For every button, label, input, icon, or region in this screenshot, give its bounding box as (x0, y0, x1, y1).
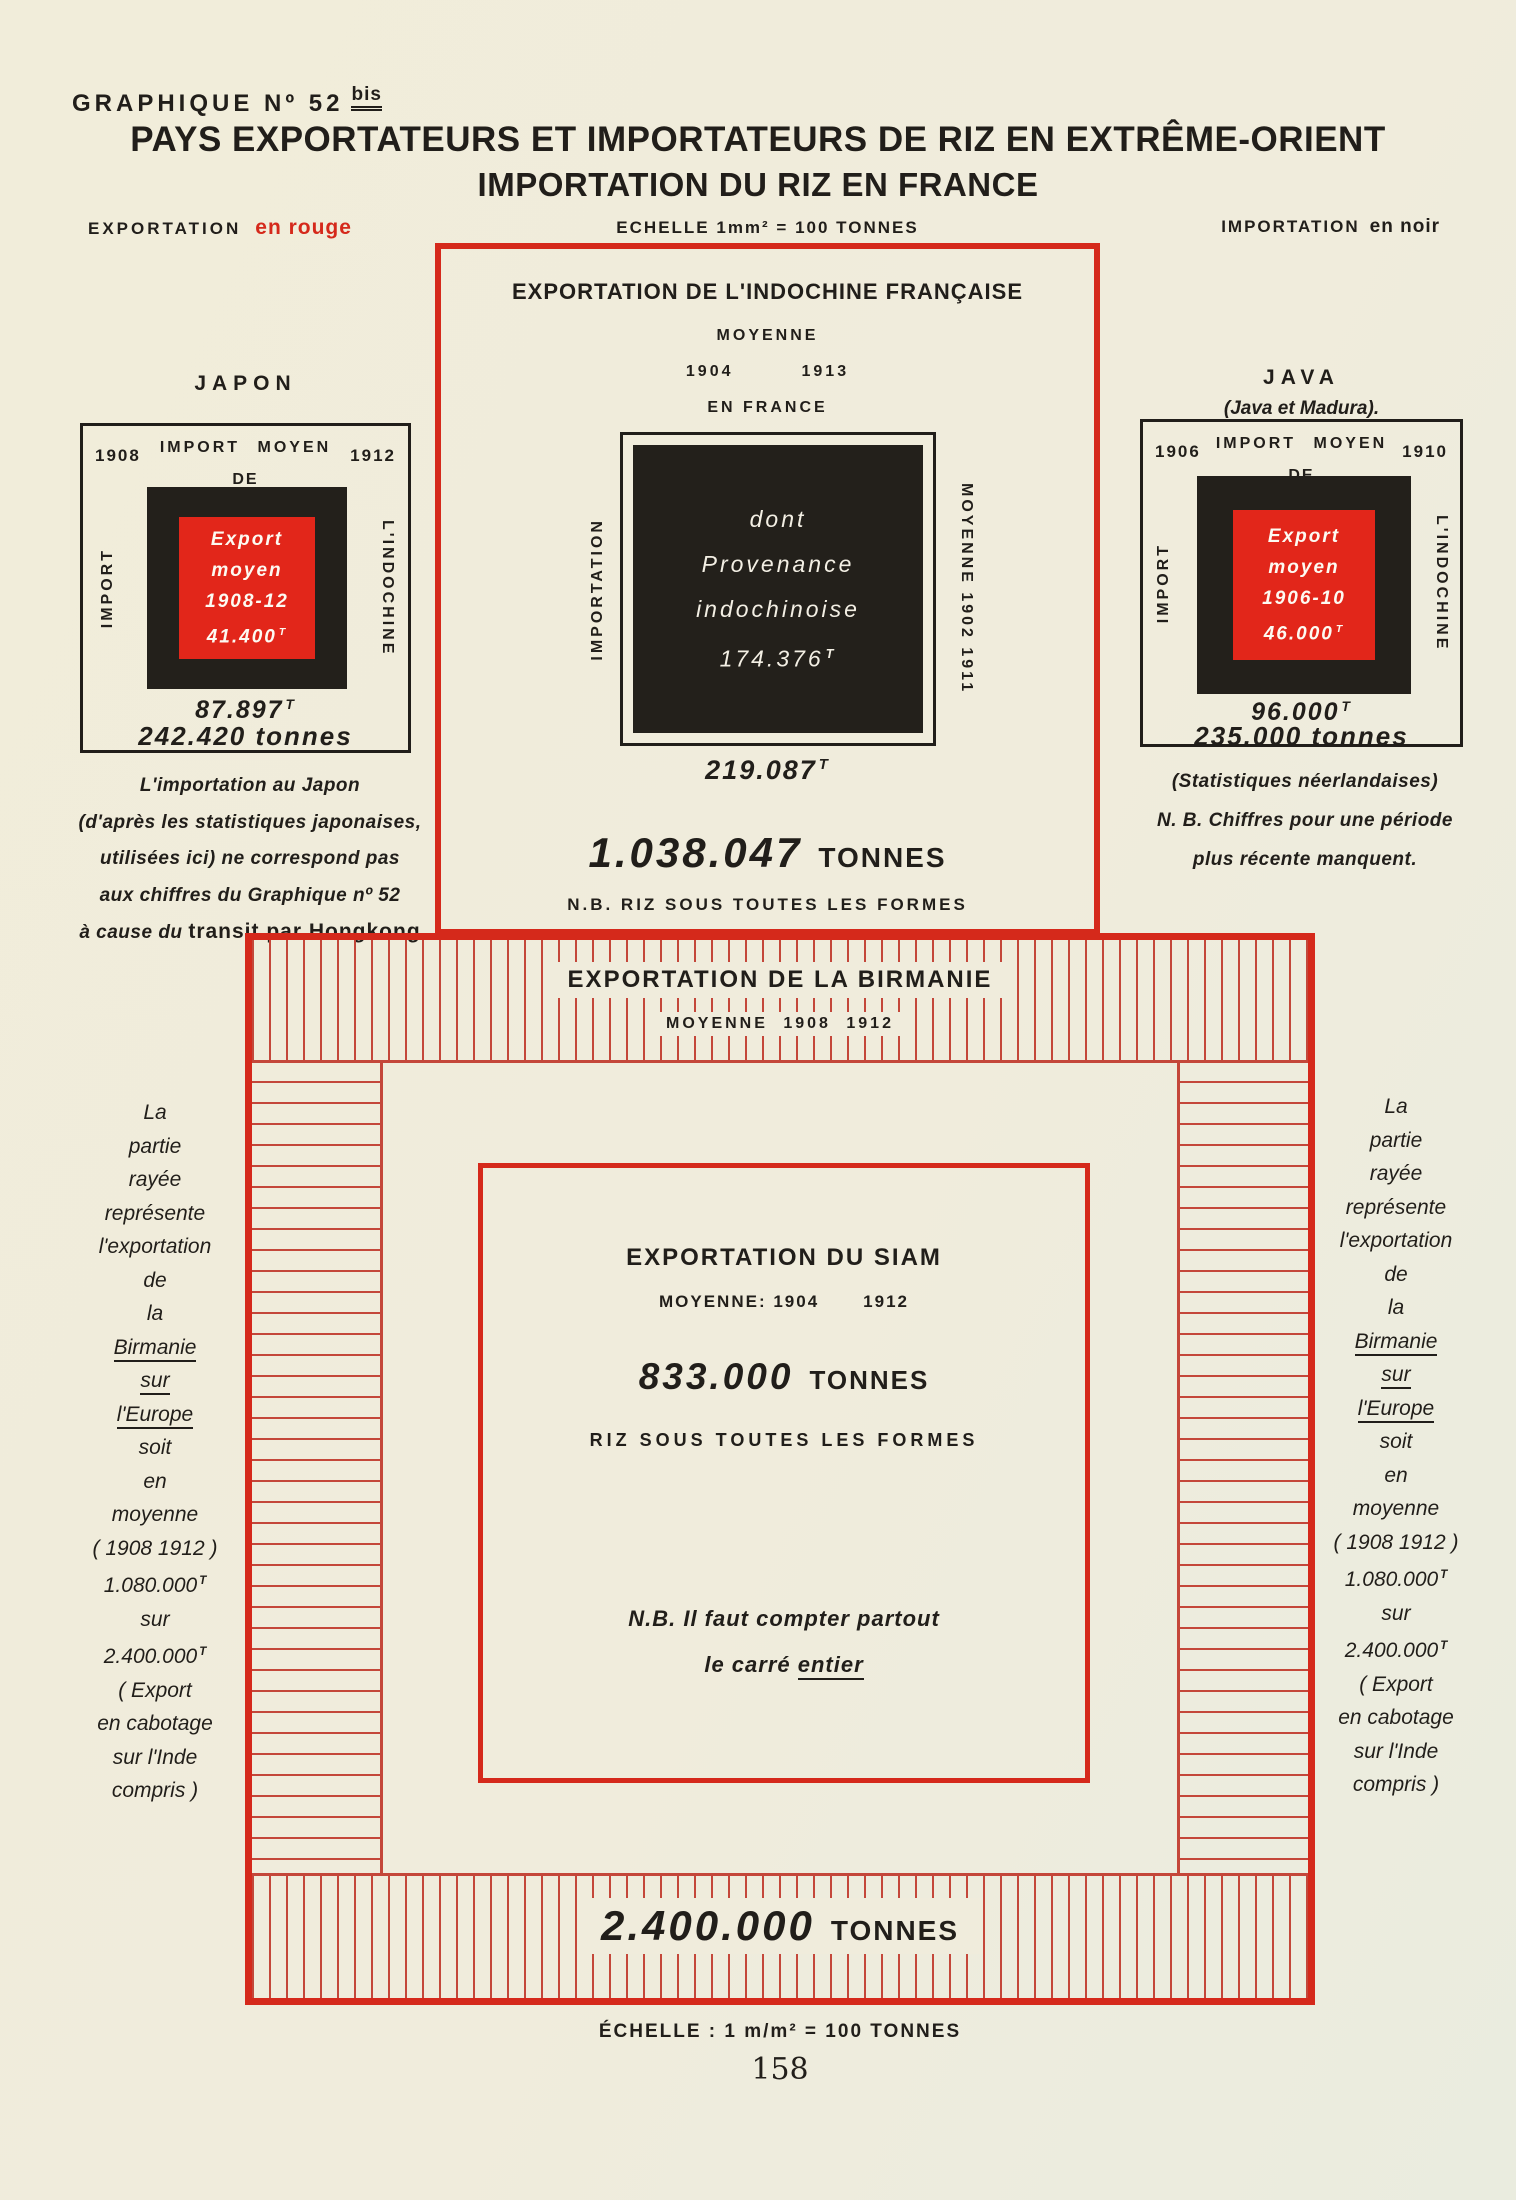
siam-total: 833.000TONNES (483, 1356, 1085, 1398)
side-note-line: en cabotage (38, 1707, 272, 1741)
siam-nb-line2: le carré entier (483, 1652, 1085, 1678)
japan-red-export-square: Export moyen 1908-12 41.400T (179, 517, 315, 659)
side-note-line: compris ) (38, 1774, 272, 1808)
side-note-line: en (1284, 1459, 1508, 1493)
java-black-square: Export moyen 1906-10 46.000T (1197, 476, 1411, 694)
black-square-line: Provenance (633, 542, 923, 587)
siam-nb-line2-underlined: entier (798, 1652, 864, 1680)
side-note-line: partie (38, 1130, 272, 1164)
legend-importation: IMPORTATIONen noir (1221, 216, 1440, 238)
side-note-line: représente (1284, 1191, 1508, 1225)
tonnes-superscript: T (826, 647, 837, 661)
side-note-line: de (38, 1264, 272, 1298)
japan-note-line: aux chiffres du Graphique nº 52 (35, 878, 465, 915)
japan-label: JAPON (80, 372, 411, 396)
siam-title: EXPORTATION DU SIAM (483, 1244, 1085, 1272)
graph-number-text: GRAPHIQUE Nº 52 (72, 90, 343, 117)
page-subtitle: IMPORTATION DU RIZ EN FRANCE (0, 166, 1516, 204)
indochina-right-axis-label: MOYENNE 1902 1911 (957, 435, 975, 743)
black-square-line: indochinoise (633, 587, 923, 632)
side-note-line: l'exportation (38, 1230, 272, 1264)
red-square-line: Export (1233, 521, 1375, 552)
siam-total-number: 833.000 (639, 1356, 794, 1397)
black-square-value: 174.376T (633, 632, 923, 682)
indochina-total-number: 1.038.047 (588, 829, 802, 876)
side-note-line: rayée (1284, 1157, 1508, 1191)
side-note-line: moyenne (38, 1498, 272, 1532)
japan-top-label: IMPORT MOYEN (83, 439, 408, 457)
japan-note-line: L'importation au Japon (35, 768, 465, 805)
java-total-value: 235.000 tonnes (1143, 723, 1460, 750)
japan-black-square: Export moyen 1908-12 41.400T (147, 487, 347, 689)
graph-number-label: GRAPHIQUE Nº 52bis (72, 90, 382, 122)
red-square-line: 1906-10 (1233, 583, 1375, 614)
side-note-line: moyenne (1284, 1492, 1508, 1526)
graph-number-suffix: bis (351, 84, 381, 111)
burma-title: EXPORTATION DE LA BIRMANIE (548, 962, 1013, 998)
tonnes-superscript: T (819, 757, 830, 773)
scale-note-top: ECHELLE 1mm² = 100 TONNES (435, 218, 1100, 238)
burma-total-unit: TONNES (831, 1915, 959, 1946)
java-right-axis-label: L'INDOCHINE (1432, 422, 1450, 744)
indochina-france-import-value: 219.087T (441, 755, 1094, 786)
moyenne-1902-1911-vertical-label: MOYENNE 1902 1911 (957, 483, 975, 694)
side-note-line: en cabotage (1284, 1701, 1508, 1735)
importation-vertical-label: IMPORTATION (589, 518, 607, 661)
indochina-year-start: 1904 (686, 363, 734, 380)
import-vertical-label: IMPORT (99, 548, 117, 628)
indochina-total-unit: TONNES (818, 842, 946, 873)
side-note-line: sur l'Inde (1284, 1735, 1508, 1769)
burma-hatch-band-bottom: 2.400.000TONNES (252, 1873, 1308, 1998)
side-note-line: 2.400.000T (38, 1636, 272, 1674)
provenance-value: 174.376 (720, 645, 824, 671)
java-red-export-square: Export moyen 1906-10 46.000T (1233, 510, 1375, 660)
siam-export-box: EXPORTATION DU SIAM MOYENNE: 19041912 83… (478, 1163, 1090, 1783)
side-note-line: rayée (38, 1163, 272, 1197)
tonnes-superscript: T (1440, 1569, 1447, 1581)
java-left-axis-label: IMPORT (1155, 422, 1173, 744)
tonnes-superscript: T (1342, 699, 1352, 714)
tonnes-superscript: T (199, 1646, 206, 1658)
japan-import-number: 87.897 (195, 696, 283, 724)
side-note-line: représente (38, 1197, 272, 1231)
side-note-line: Birmanie (1284, 1325, 1508, 1359)
side-note-line: sur (1284, 1358, 1508, 1392)
burma-europe-note-left: Lapartierayéereprésentel'exportationdela… (38, 1096, 272, 1808)
indochina-black-square: dont Provenance indochinoise 174.376T (633, 445, 923, 733)
side-note-line: l'Europe (38, 1398, 272, 1432)
red-square-line: 1908-12 (179, 586, 315, 617)
indochine-vertical-label: L'INDOCHINE (1432, 515, 1450, 651)
side-note-line: sur (1284, 1597, 1508, 1631)
japan-note-tail: à cause du (79, 922, 188, 943)
france-import-number: 219.087 (705, 755, 817, 785)
java-note-line: (Statistiques néerlandaises) (1130, 762, 1480, 801)
burma-hatch-band-top: EXPORTATION DE LA BIRMANIE MOYENNE 1908 … (252, 940, 1308, 1063)
indochina-left-axis-label: IMPORTATION (589, 435, 607, 743)
import-vertical-label: IMPORT (1155, 543, 1173, 623)
japan-note-line: (d'après les statistiques japonaises, (35, 805, 465, 842)
side-note-line: l'Europe (1284, 1392, 1508, 1426)
legend-exportation-value: en rouge (255, 216, 352, 239)
tonnes-superscript: T (1440, 1640, 1447, 1652)
burma-subtitle: MOYENNE 1908 1912 (650, 1012, 910, 1036)
scale-note-bottom: ÉCHELLE : 1 m/m² = 100 TONNES (245, 2021, 1315, 2043)
tonnes-superscript: T (279, 627, 287, 638)
japan-import-box: 1908 1912 IMPORT MOYEN DE IMPORT L'INDOC… (80, 423, 411, 753)
legend-exportation: EXPORTATIONen rouge (88, 216, 352, 240)
siam-subtitle: MOYENNE: 19041912 (483, 1292, 1085, 1312)
java-label: JAVA (1140, 366, 1463, 390)
side-note-line: la (1284, 1291, 1508, 1325)
side-note-line: soit (1284, 1425, 1508, 1459)
java-note: (Statistiques néerlandaises) N. B. Chiff… (1130, 762, 1480, 879)
java-export-number: 46.000 (1264, 623, 1334, 644)
red-square-line: moyen (179, 555, 315, 586)
side-note-line: compris ) (1284, 1768, 1508, 1802)
japan-note: L'importation au Japon (d'après les stat… (35, 768, 465, 952)
red-square-line: Export (179, 524, 315, 555)
side-note-line: ( Export (1284, 1668, 1508, 1702)
page-number: 158 (245, 2052, 1315, 2087)
java-sublabel: (Java et Madura). (1140, 398, 1463, 420)
japan-note-line: utilisées ici) ne correspond pas (35, 841, 465, 878)
siam-riz-note: RIZ SOUS TOUTES LES FORMES (483, 1430, 1085, 1451)
siam-moyenne: MOYENNE: 1904 (659, 1292, 819, 1311)
side-note-line: sur (38, 1603, 272, 1637)
siam-year-end: 1912 (863, 1292, 909, 1311)
side-note-line: ( 1908 1912 ) (1284, 1526, 1508, 1560)
side-note-line: 2.400.000T (1284, 1630, 1508, 1668)
side-note-line: partie (1284, 1124, 1508, 1158)
siam-nb-line1: N.B. Il faut compter partout (483, 1606, 1085, 1632)
side-note-line: La (1284, 1090, 1508, 1124)
japan-export-number: 41.400 (207, 626, 277, 647)
side-note-line: de (1284, 1258, 1508, 1292)
side-note-line: 1.080.000T (38, 1565, 272, 1603)
java-note-line: plus récente manquent. (1130, 840, 1480, 879)
side-note-line: 1.080.000T (1284, 1559, 1508, 1597)
side-note-line: sur (38, 1364, 272, 1398)
legend-exportation-label: EXPORTATION (88, 219, 241, 238)
burma-export-box: EXPORTATION DE LA BIRMANIE MOYENNE 1908 … (245, 933, 1315, 2005)
indochina-year-end: 1913 (802, 363, 850, 380)
indochina-title: EXPORTATION DE L'INDOCHINE FRANÇAISE (441, 279, 1094, 305)
side-note-line: sur l'Inde (38, 1741, 272, 1775)
indochina-years: 19041913 (441, 363, 1094, 381)
indochina-total: 1.038.047TONNES (441, 829, 1094, 877)
indochina-en-france-label: EN FRANCE (441, 399, 1094, 417)
side-note-line: ( 1908 1912 ) (38, 1532, 272, 1566)
burma-europe-note-right: Lapartierayéereprésentel'exportationdela… (1284, 1090, 1508, 1802)
page-title: PAYS EXPORTATEURS ET IMPORTATEURS DE RIZ… (0, 120, 1516, 160)
legend-importation-value: en noir (1370, 216, 1440, 237)
red-square-value: 46.000T (1233, 614, 1375, 649)
side-note-line: ( Export (38, 1674, 272, 1708)
indochina-moyenne-label: MOYENNE (441, 327, 1094, 345)
legend-importation-label: IMPORTATION (1221, 217, 1359, 236)
side-note-line: La (38, 1096, 272, 1130)
java-note-line: N. B. Chiffres pour une période (1130, 801, 1480, 840)
japan-total-value: 242.420 tonnes (83, 723, 408, 750)
java-import-box: 1906 1910 IMPORT MOYEN DE IMPORT L'INDOC… (1140, 419, 1463, 747)
red-square-value: 41.400T (179, 617, 315, 652)
indochina-nb-note: N.B. RIZ SOUS TOUTES LES FORMES (441, 895, 1094, 915)
side-note-line: l'exportation (1284, 1224, 1508, 1258)
siam-total-unit: TONNES (809, 1365, 929, 1395)
tonnes-superscript: T (199, 1575, 206, 1587)
tonnes-superscript: T (286, 697, 296, 712)
java-top-label: IMPORT MOYEN (1143, 435, 1460, 453)
black-square-line: dont (633, 497, 923, 542)
indochina-export-box: EXPORTATION DE L'INDOCHINE FRANÇAISE MOY… (435, 243, 1100, 935)
red-square-line: moyen (1233, 552, 1375, 583)
indochine-vertical-label: L'INDOCHINE (378, 520, 396, 656)
tonnes-superscript: T (1336, 624, 1344, 635)
side-note-line: soit (38, 1431, 272, 1465)
side-note-line: en (38, 1465, 272, 1499)
siam-nb-line2-pre: le carré (704, 1652, 797, 1677)
indochina-import-square: IMPORTATION MOYENNE 1902 1911 dont Prove… (620, 432, 936, 746)
burma-total: 2.400.000TONNES (577, 1898, 983, 1954)
burma-total-number: 2.400.000 (601, 1902, 815, 1949)
side-note-line: la (38, 1297, 272, 1331)
side-note-line: Birmanie (38, 1331, 272, 1365)
